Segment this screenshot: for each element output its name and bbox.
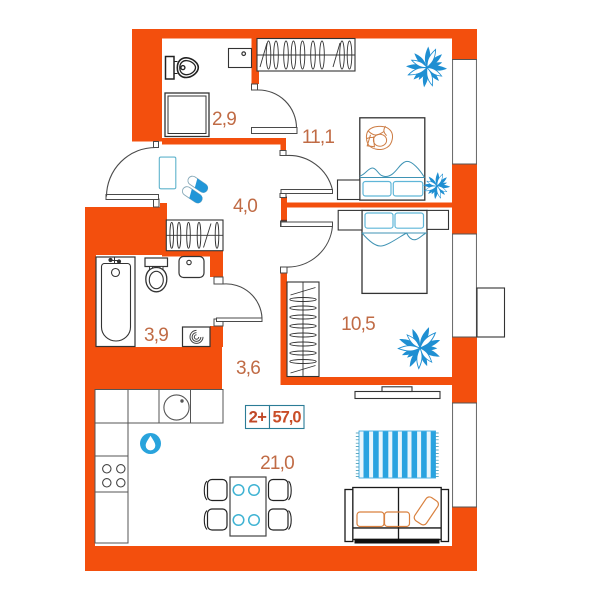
svg-text:57,0: 57,0 <box>272 409 301 427</box>
svg-text:4,0: 4,0 <box>233 196 257 217</box>
svg-text:2,9: 2,9 <box>212 109 236 130</box>
svg-text:3,9: 3,9 <box>144 325 168 346</box>
svg-text:10,5: 10,5 <box>341 314 375 335</box>
svg-text:11,1: 11,1 <box>302 127 335 148</box>
svg-text:3,6: 3,6 <box>236 358 260 379</box>
svg-text:2+: 2+ <box>249 409 267 427</box>
svg-text:21,0: 21,0 <box>260 453 294 474</box>
